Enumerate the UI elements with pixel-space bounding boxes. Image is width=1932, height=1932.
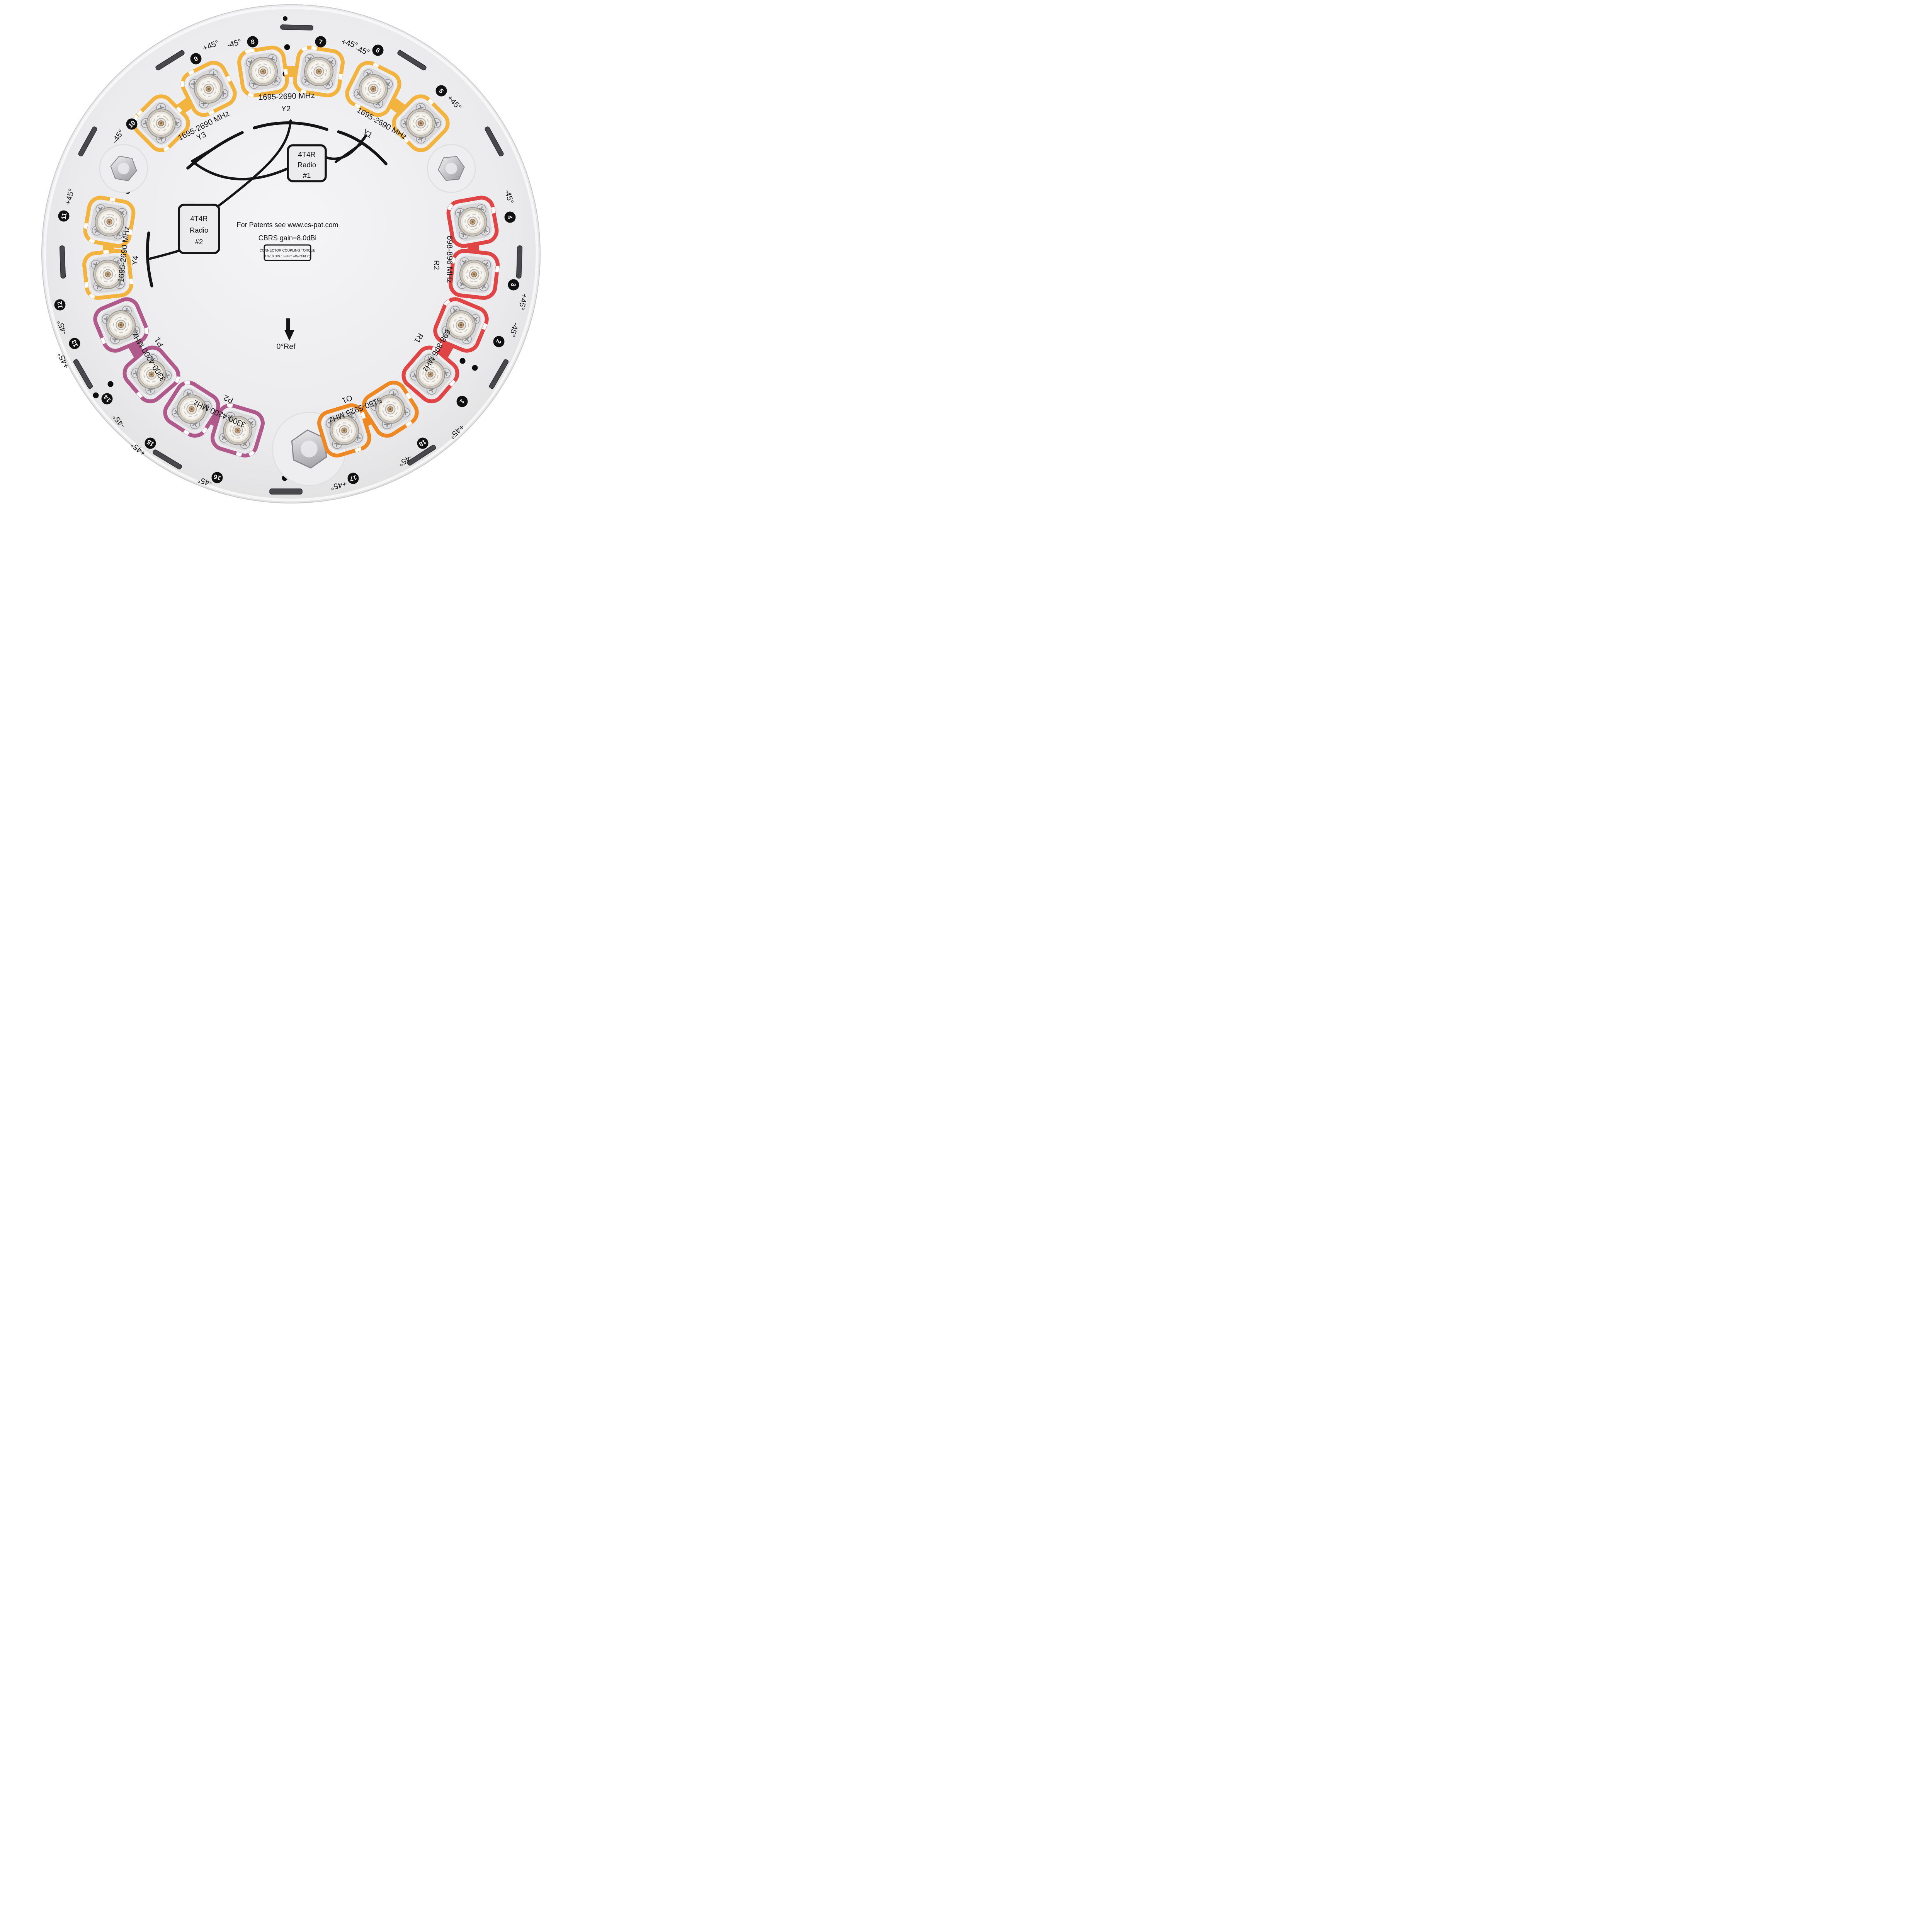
antenna-panel-diagram: 4T4R Radio #1 4T4R Radio #2 For Patents … [0,0,597,520]
radio-1-line2: Radio [298,161,316,169]
port-8-connector [243,51,284,92]
radio-2-line1: 4T4R [190,214,207,223]
radio-1-line1: 4T4R [298,150,315,158]
gain-text: CBRS gain=8.0dBi [259,234,317,242]
svg-text:12: 12 [56,301,64,309]
port-4-connector [452,201,493,243]
radio-2-line2: Radio [190,226,208,234]
port-3-connector [454,255,494,294]
ref-arrow-icon [286,318,290,331]
antenna-panel-view: 4T4R Radio #1 4T4R Radio #2 For Patents … [0,0,597,520]
radio-1-box: 4T4R Radio #1 [288,145,326,181]
freq-label-R2: 698-896 MHz [445,235,454,283]
ref-label: 0°Ref [277,342,296,351]
radio-2-box: 4T4R Radio #2 [179,205,219,253]
group-label-Y4: Y4 [131,255,140,266]
port-7-connector [299,51,339,92]
group-label-R2: R2 [432,260,440,270]
torque-line2: 4.3-10 DIN : 5-8Nm (45-71lbf in) [265,254,311,258]
mounting-bolt-left [100,145,148,192]
mounting-bolt-right [427,145,475,192]
patents-text: For Patents see www.cs-pat.com [236,221,338,229]
torque-line1: CONNECTOR COUPLING TORQUE [260,248,316,252]
radio-1-line3: #1 [303,171,311,179]
radio-2-line3: #2 [195,238,203,246]
group-label-Y2: Y2 [281,105,291,113]
svg-text:11: 11 [60,212,68,220]
